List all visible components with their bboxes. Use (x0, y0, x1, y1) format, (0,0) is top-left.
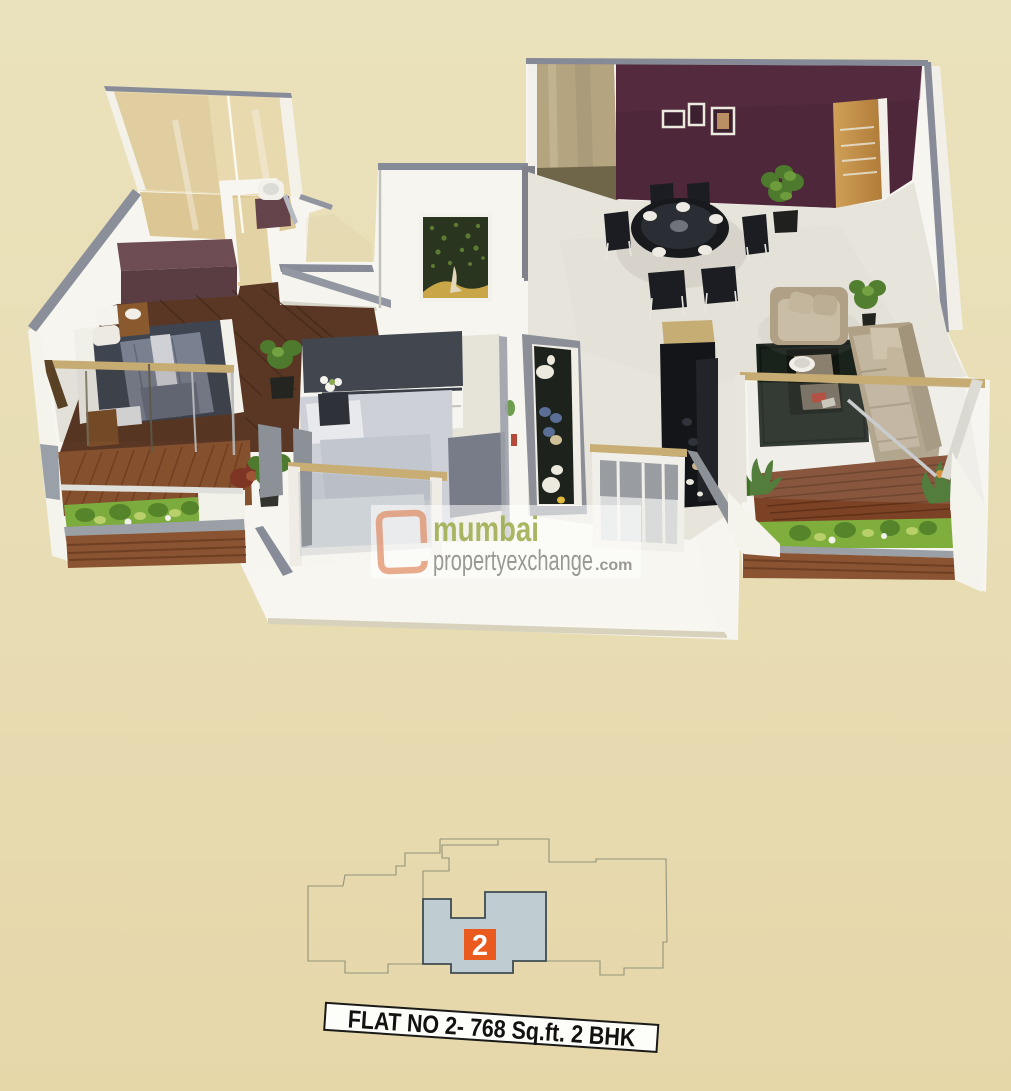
svg-text:mumbai: mumbai (433, 510, 539, 549)
svg-text:.com: .com (595, 557, 632, 574)
svg-text:2: 2 (472, 930, 488, 962)
svg-text:propertyexchange: propertyexchange (433, 545, 593, 577)
